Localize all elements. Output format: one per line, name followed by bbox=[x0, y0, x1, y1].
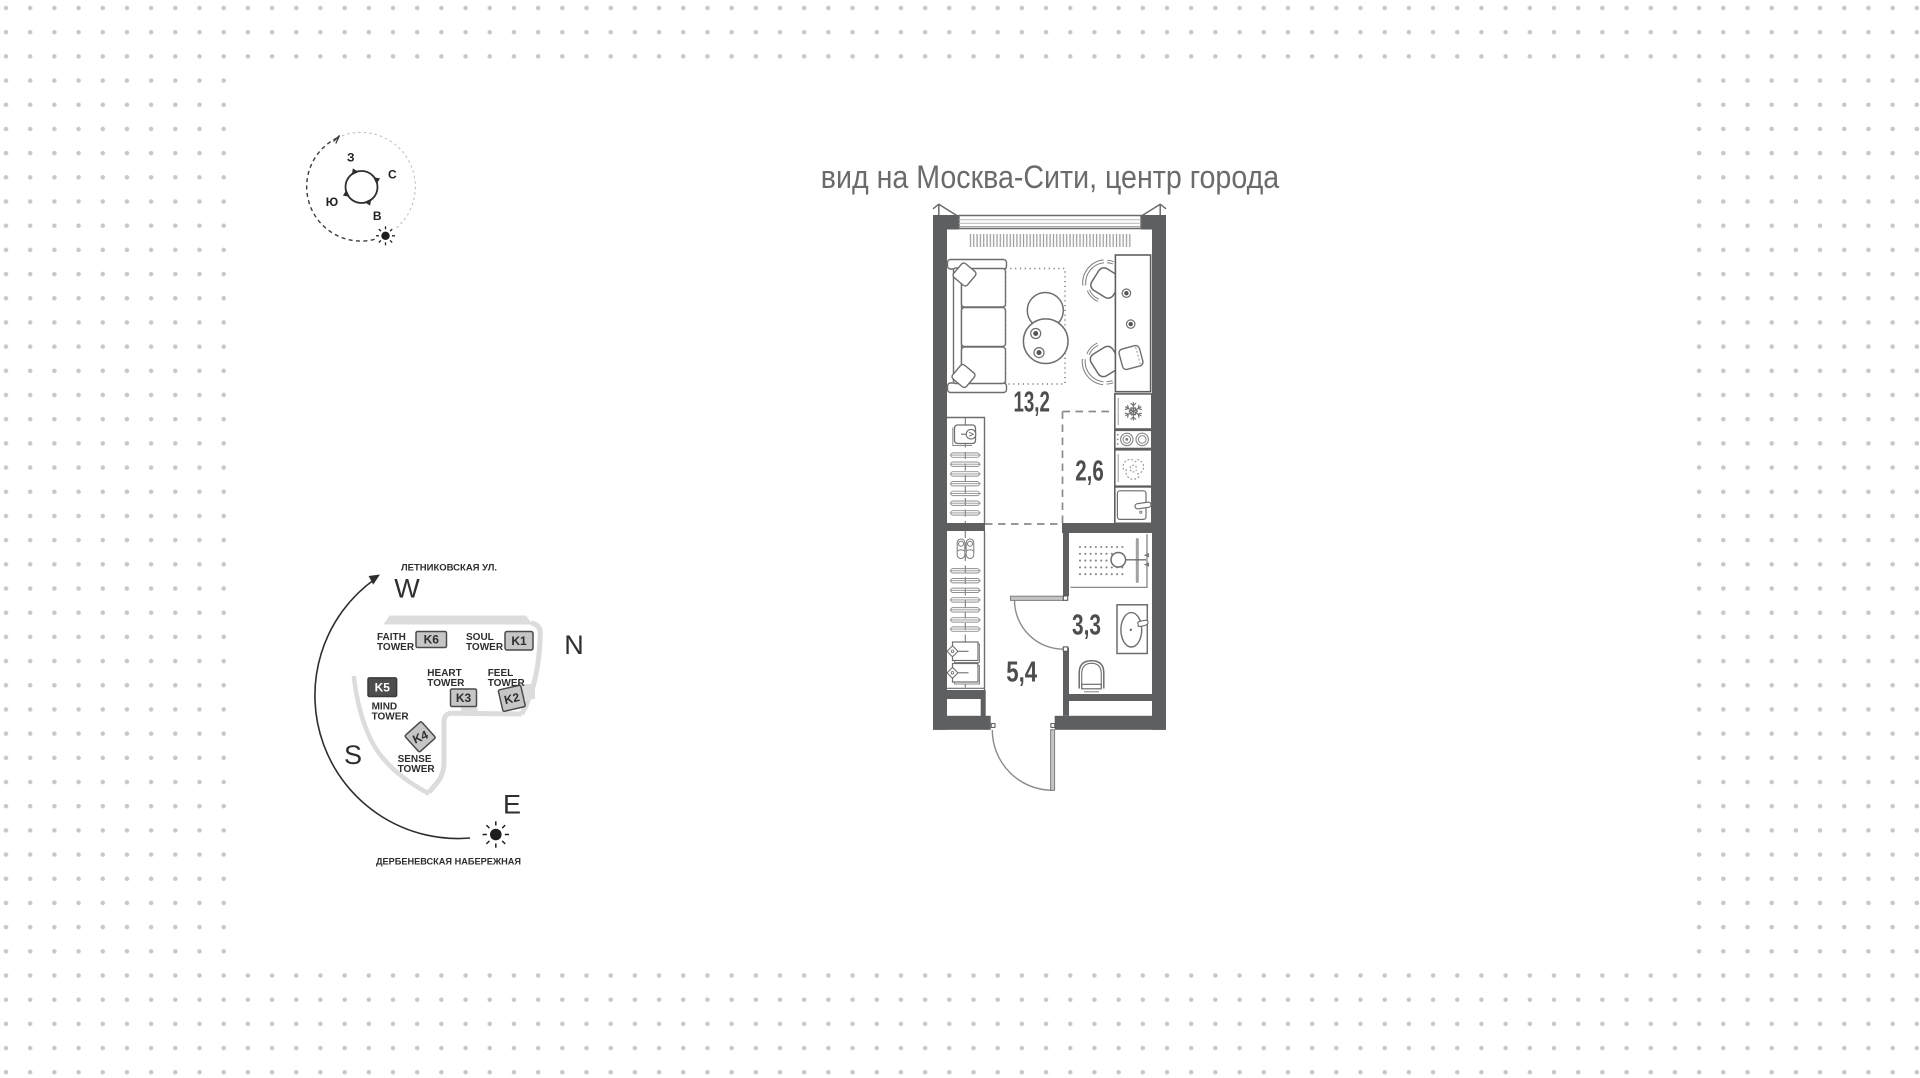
svg-text:TOWER: TOWER bbox=[372, 712, 410, 723]
svg-text:TOWER: TOWER bbox=[427, 678, 465, 689]
svg-text:K3: K3 bbox=[456, 691, 472, 705]
svg-text:K6: K6 bbox=[424, 633, 440, 647]
svg-text:K1: K1 bbox=[511, 634, 527, 648]
svg-text:Ю: Ю bbox=[326, 195, 338, 209]
svg-text:13,2: 13,2 bbox=[1014, 386, 1050, 418]
svg-text:S: S bbox=[344, 740, 362, 770]
svg-text:5,4: 5,4 bbox=[1006, 657, 1038, 688]
svg-text:2,6: 2,6 bbox=[1075, 456, 1104, 487]
svg-text:3,3: 3,3 bbox=[1072, 609, 1101, 641]
svg-text:K5: K5 bbox=[375, 680, 391, 694]
svg-text:E: E bbox=[503, 790, 521, 820]
svg-text:С: С bbox=[388, 168, 397, 182]
svg-text:ЛЕТНИКОВСКАЯ УЛ.: ЛЕТНИКОВСКАЯ УЛ. bbox=[401, 563, 497, 574]
svg-text:вид на Москва-Сити, центр горо: вид на Москва-Сити, центр города bbox=[821, 160, 1280, 196]
svg-text:TOWER: TOWER bbox=[466, 642, 504, 653]
svg-text:В: В bbox=[373, 209, 382, 223]
svg-text:N: N bbox=[564, 630, 584, 660]
svg-text:ДЕРБЕНЕВСКАЯ НАБЕРЕЖНАЯ: ДЕРБЕНЕВСКАЯ НАБЕРЕЖНАЯ bbox=[376, 857, 521, 867]
svg-text:TOWER: TOWER bbox=[488, 678, 526, 689]
svg-text:TOWER: TOWER bbox=[398, 764, 436, 775]
svg-text:W: W bbox=[394, 574, 420, 604]
svg-text:TOWER: TOWER bbox=[377, 642, 415, 653]
svg-text:З: З bbox=[347, 151, 355, 165]
